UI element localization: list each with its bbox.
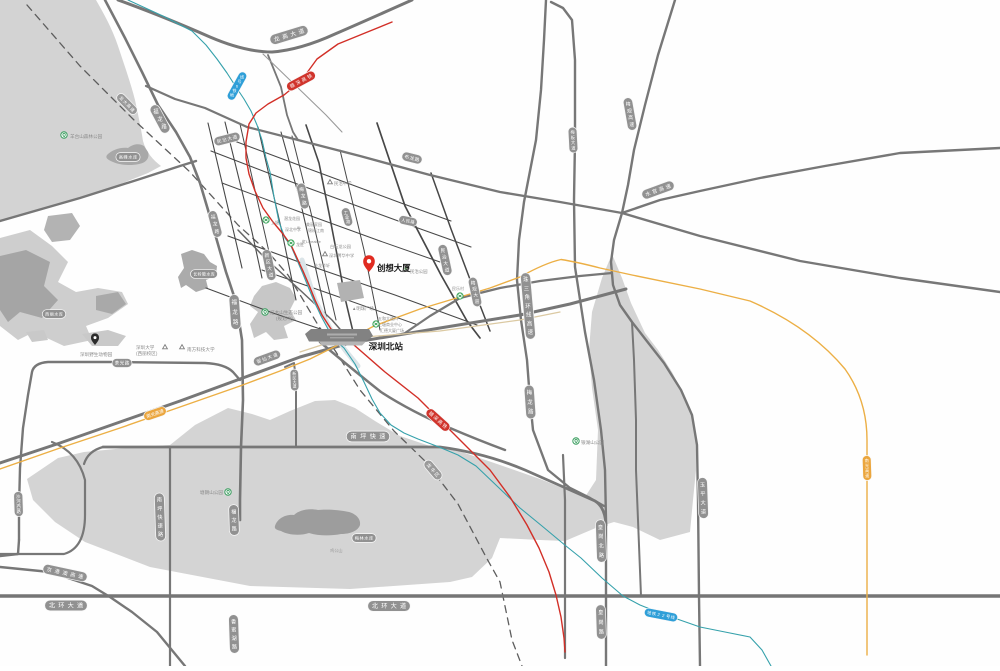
svg-text:水: 水 — [54, 310, 58, 316]
svg-text:塘朗山公园: 塘朗山公园 — [200, 489, 223, 496]
svg-text:快: 快 — [370, 433, 377, 441]
svg-text:民乐村: 民乐村 — [452, 285, 464, 291]
svg-text:北: 北 — [372, 602, 379, 610]
svg-text:大: 大 — [267, 265, 272, 272]
svg-text:白石龙公园: 白石龙公园 — [330, 243, 351, 250]
svg-text:道: 道 — [701, 507, 706, 515]
svg-text:金龙华轩: 金龙华轩 — [314, 262, 330, 268]
svg-text:北: 北 — [599, 542, 605, 550]
svg-text:锦绣江南: 锦绣江南 — [308, 227, 324, 233]
svg-text:路: 路 — [17, 508, 22, 515]
svg-text:新: 新 — [265, 252, 270, 259]
svg-text:龙: 龙 — [213, 221, 218, 228]
svg-text:大: 大 — [701, 498, 706, 506]
svg-text:民治公园: 民治公园 — [410, 268, 428, 275]
svg-text:长: 长 — [193, 270, 197, 276]
svg-text:高: 高 — [628, 114, 633, 121]
svg-text:龙: 龙 — [527, 398, 533, 406]
svg-text:南: 南 — [351, 433, 357, 441]
svg-text:路: 路 — [125, 360, 130, 367]
svg-text:龙: 龙 — [232, 308, 238, 316]
svg-text:红木山生态公园: 红木山生态公园 — [270, 309, 303, 316]
svg-text:(西丽校区): (西丽校区) — [136, 350, 158, 357]
svg-text:道: 道 — [293, 384, 297, 389]
svg-text:路: 路 — [599, 628, 605, 636]
svg-text:坪: 坪 — [157, 504, 162, 512]
svg-text:道: 道 — [445, 266, 450, 273]
svg-text:岗: 岗 — [598, 533, 603, 540]
svg-text:龙: 龙 — [231, 516, 236, 524]
svg-text:福: 福 — [211, 214, 216, 221]
svg-text:区: 区 — [266, 259, 271, 265]
svg-text:库: 库 — [59, 310, 63, 316]
svg-text:龙胜: 龙胜 — [296, 241, 304, 247]
svg-text:梅: 梅 — [299, 186, 304, 193]
svg-text:库: 库 — [369, 535, 373, 542]
svg-text:(规划中): (规划中) — [276, 315, 293, 322]
svg-text:路: 路 — [232, 524, 238, 532]
svg-text:路: 路 — [233, 318, 239, 326]
svg-text:民治中学: 民治中学 — [334, 180, 352, 187]
svg-text:道: 道 — [400, 602, 406, 610]
svg-text:汇德大厦广场: 汇德大厦广场 — [380, 327, 404, 333]
svg-text:玉: 玉 — [700, 481, 705, 488]
svg-text:线: 线 — [526, 311, 532, 319]
svg-text:路: 路 — [215, 228, 220, 235]
svg-text:北: 北 — [49, 602, 56, 610]
svg-text:大: 大 — [68, 602, 74, 610]
svg-text:羊台山森林公园: 羊台山森林公园 — [70, 133, 103, 140]
svg-text:五和大道口: 五和大道口 — [378, 315, 398, 321]
svg-text:速: 速 — [528, 329, 534, 336]
svg-text:蜜: 蜜 — [231, 626, 236, 634]
svg-text:大: 大 — [443, 260, 448, 267]
svg-text:福: 福 — [231, 298, 237, 306]
svg-text:高: 高 — [119, 154, 123, 161]
svg-text:丽: 丽 — [50, 311, 54, 316]
svg-text:民: 民 — [441, 248, 446, 254]
svg-text:银湖山公园: 银湖山公园 — [581, 439, 604, 446]
svg-text:南: 南 — [157, 496, 162, 504]
svg-text:▲明珠广场: ▲明珠广场 — [352, 305, 375, 312]
svg-text:皇: 皇 — [598, 608, 603, 616]
svg-text:美丽家园: 美丽家园 — [306, 221, 322, 227]
svg-text:快: 快 — [157, 513, 163, 521]
svg-text:深圳野生动物园: 深圳野生动物园 — [80, 351, 113, 358]
svg-text:皇: 皇 — [598, 523, 603, 531]
svg-text:道: 道 — [269, 271, 274, 278]
svg-text:⊞: ⊞ — [297, 226, 300, 230]
svg-text:道: 道 — [475, 298, 480, 305]
svg-text:深圳北站: 深圳北站 — [369, 341, 404, 352]
svg-text:岗: 岗 — [598, 619, 603, 626]
svg-text:梅: 梅 — [355, 535, 359, 542]
svg-text:平: 平 — [700, 490, 705, 497]
svg-text:湖: 湖 — [232, 634, 237, 642]
svg-text:深圳大学: 深圳大学 — [136, 344, 155, 351]
svg-text:龙: 龙 — [157, 115, 163, 123]
svg-text:线: 线 — [240, 73, 244, 79]
svg-text:速: 速 — [379, 433, 385, 441]
svg-text:角: 角 — [525, 293, 530, 301]
svg-text:梅: 梅 — [471, 280, 476, 287]
svg-text:路: 路 — [599, 551, 605, 559]
svg-text:环: 环 — [381, 603, 387, 610]
svg-text:高: 高 — [527, 319, 533, 327]
svg-text:⊕: ⊕ — [404, 266, 407, 271]
svg-text:环: 环 — [58, 603, 64, 610]
svg-text:路: 路 — [158, 530, 164, 538]
svg-text:香: 香 — [231, 617, 236, 625]
svg-text:珠: 珠 — [523, 276, 529, 284]
svg-text:潜龙花园: 潜龙花园 — [284, 215, 300, 221]
svg-text:三: 三 — [524, 285, 530, 292]
svg-text:库: 库 — [211, 270, 215, 276]
svg-text:福: 福 — [153, 107, 159, 115]
svg-text:库: 库 — [133, 154, 137, 161]
svg-text:西: 西 — [45, 311, 49, 316]
svg-text:环: 环 — [525, 303, 531, 310]
svg-text:道: 道 — [77, 602, 83, 610]
svg-text:路: 路 — [232, 642, 238, 650]
svg-text:治: 治 — [442, 253, 447, 260]
svg-text:鸡公山: 鸡公山 — [330, 547, 343, 554]
svg-text:梅: 梅 — [527, 388, 533, 396]
svg-text:上塘: 上塘 — [271, 219, 279, 225]
svg-text:陂: 陂 — [202, 270, 206, 276]
svg-text:路: 路 — [528, 407, 534, 415]
svg-text:虹Liveable: 虹Liveable — [302, 238, 322, 244]
svg-text:龙: 龙 — [301, 193, 306, 200]
svg-text:路: 路 — [302, 200, 307, 207]
svg-text:水: 水 — [206, 270, 210, 276]
svg-text:观: 观 — [627, 108, 632, 114]
svg-text:岭: 岭 — [198, 270, 202, 276]
svg-text:梅: 梅 — [626, 100, 631, 107]
svg-text:上塘商业中心: 上塘商业中心 — [378, 321, 402, 327]
svg-text:大: 大 — [391, 602, 397, 610]
svg-text:速: 速 — [629, 122, 634, 128]
svg-text:坪: 坪 — [360, 433, 366, 441]
svg-text:南方科技大学: 南方科技大学 — [187, 346, 215, 353]
svg-text:大: 大 — [473, 292, 478, 299]
svg-text:速: 速 — [158, 522, 163, 529]
svg-text:深圳菁华中学: 深圳菁华中学 — [329, 252, 354, 259]
svg-text:福: 福 — [231, 507, 236, 515]
svg-text:路: 路 — [161, 122, 167, 130]
